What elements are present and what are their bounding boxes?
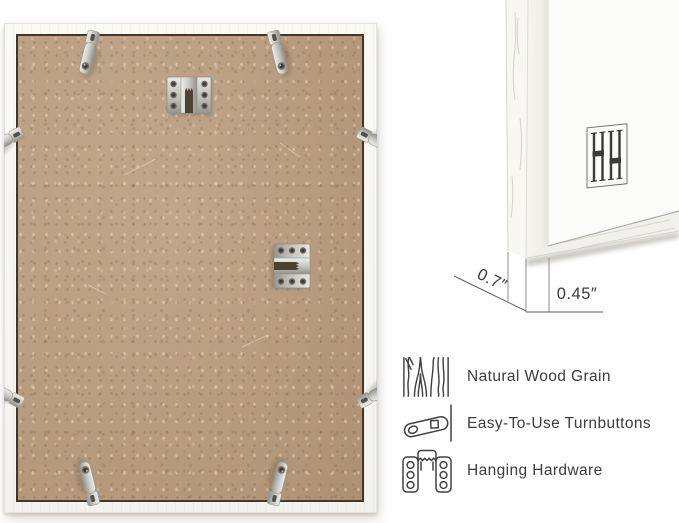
- turnbutton: [356, 122, 377, 159]
- feature-list: Natural Wood Grain Easy-To-Use Turnbutto…: [401, 357, 679, 491]
- backing-scratches: [88, 143, 300, 347]
- feature-item: Natural Wood Grain: [401, 357, 679, 397]
- hanging-hardware-icon: [401, 448, 455, 494]
- feature-label: Easy-To-Use Turnbuttons: [467, 415, 651, 433]
- product-image: 0.7″ 0.45″: [0, 0, 679, 523]
- turnbutton: [4, 126, 27, 163]
- dimension-depth-label: 0.7″: [474, 265, 510, 295]
- corner-detail: 0.7″ 0.45″: [440, 0, 679, 330]
- frame-front-face: [548, 0, 679, 246]
- feature-label: Hanging Hardware: [467, 462, 603, 480]
- feature-label: Natural Wood Grain: [467, 368, 611, 386]
- dimension-face-label: 0.45″: [557, 285, 597, 303]
- sawtooth-hanger-top: [167, 77, 212, 116]
- frame-hardware-layer: [4, 23, 377, 513]
- frame-back-photo: [4, 23, 377, 513]
- turnbutton-icon: [401, 404, 455, 444]
- turnbutton: [267, 28, 295, 79]
- turnbutton: [77, 30, 105, 81]
- wood-grain-icon: [401, 356, 455, 398]
- sawtooth-hanger-middle: [271, 244, 310, 289]
- feature-item: Easy-To-Use Turnbuttons: [401, 404, 679, 444]
- feature-item: Hanging Hardware: [401, 451, 679, 491]
- turnbutton: [4, 376, 25, 413]
- turnbutton: [262, 456, 290, 507]
- turnbutton: [72, 457, 100, 508]
- turnbutton: [354, 372, 377, 409]
